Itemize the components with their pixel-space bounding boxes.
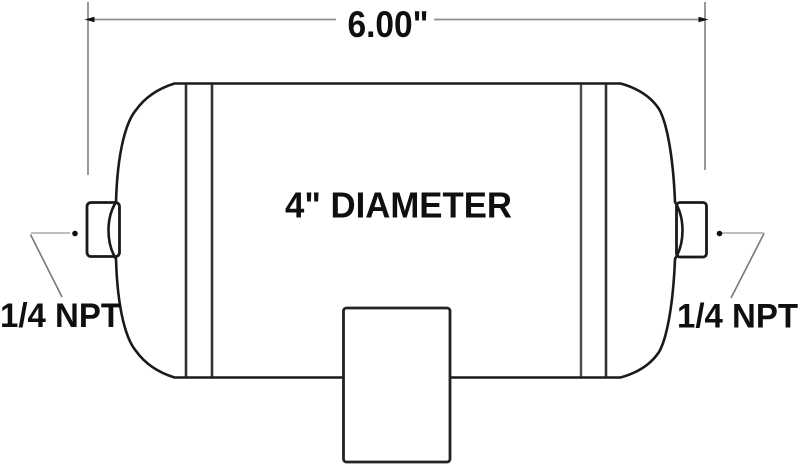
svg-text:1/4 NPT: 1/4 NPT <box>677 298 798 336</box>
svg-text:1/4 NPT: 1/4 NPT <box>0 297 121 335</box>
svg-text:4" DIAMETER: 4" DIAMETER <box>285 185 512 226</box>
svg-text:6.00": 6.00" <box>348 4 429 45</box>
